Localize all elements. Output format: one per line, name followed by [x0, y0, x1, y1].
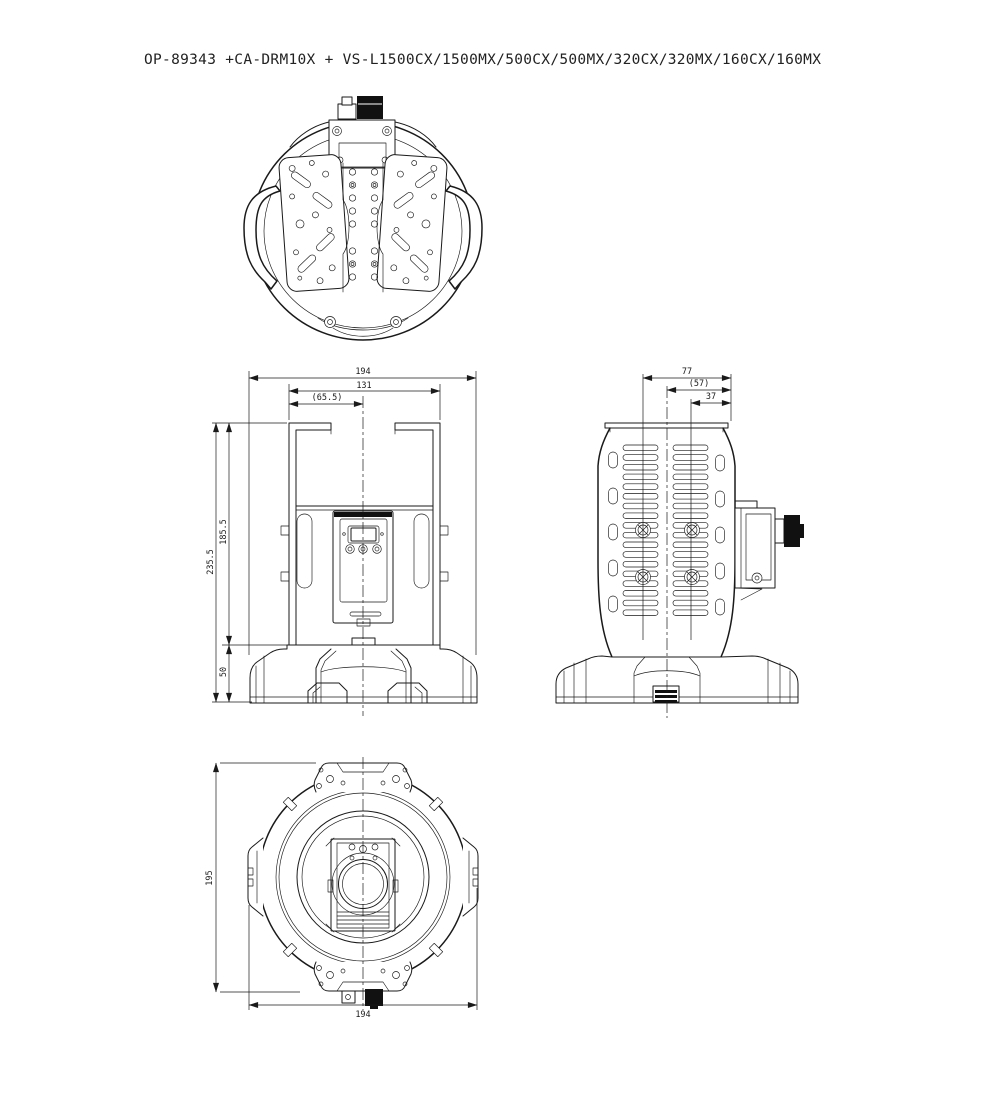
plate-screw [383, 127, 392, 136]
vent-slot [623, 552, 658, 558]
center-hole-grid [349, 169, 377, 280]
body-outline [721, 428, 735, 657]
center-hole [349, 208, 355, 214]
vent-slot [623, 561, 658, 567]
housing-tab [440, 526, 448, 535]
housing-tab [281, 526, 289, 535]
base [250, 645, 477, 703]
power-connector [357, 96, 383, 119]
vent-slot [623, 503, 658, 509]
vent-slot [673, 455, 708, 461]
vent-slot [673, 561, 708, 567]
top-flange [605, 423, 728, 428]
vent-oval [716, 491, 725, 507]
panel-button [346, 545, 355, 554]
vent-slot [623, 542, 658, 548]
vent-slot [673, 503, 708, 509]
vent-oval [609, 524, 618, 540]
vent-oval [716, 599, 725, 615]
mounting-plate-outline [278, 154, 349, 292]
vent-slot [623, 464, 658, 470]
center-hole [371, 208, 377, 214]
vent-slot [623, 474, 658, 480]
mounting-plate [278, 154, 349, 292]
plate-screw [333, 127, 342, 136]
housing-slot [414, 514, 429, 588]
vent-slot [673, 591, 708, 597]
boss-screw [391, 317, 402, 328]
vent-slot [673, 484, 708, 490]
base-connector [653, 686, 679, 702]
plug-connector [784, 515, 800, 547]
vent-slot [623, 600, 658, 606]
housing-tab [440, 572, 448, 581]
dim-side-mount-pitch: 77 [682, 367, 692, 377]
bracket-right [395, 423, 440, 649]
base-connector-stripe [655, 695, 677, 698]
dim-front-body-height: 185.5 [219, 519, 229, 545]
boss-screw [325, 317, 336, 328]
dim-front-base-height: 50 [219, 667, 229, 677]
drawing-canvas: 194 131 (65.5) 235.5 185.5 50 [0, 0, 1000, 1100]
center-hole [371, 169, 377, 175]
cable-connector [338, 104, 356, 119]
connector-box-step [735, 501, 757, 508]
vent-slot [673, 542, 708, 548]
housing-tab [281, 572, 289, 581]
vent-slot [623, 591, 658, 597]
vent-slot [623, 610, 658, 616]
vent-oval [716, 563, 725, 579]
mounting-plate [376, 154, 447, 292]
center-hole [349, 169, 355, 175]
vent-slot [673, 464, 708, 470]
vent-slot [623, 494, 658, 500]
center-hole [349, 182, 355, 188]
panel-button [373, 545, 382, 554]
top-view [244, 96, 482, 340]
vent-slot [673, 513, 708, 519]
base-center-tab [352, 638, 375, 645]
dim-front-bracket-width: 131 [356, 381, 371, 391]
bottom-view: 195 194 [205, 757, 478, 1020]
center-hole [373, 263, 376, 266]
cable-connector-cap [342, 97, 352, 105]
vent-oval [609, 452, 618, 468]
dim-bottom-overall-width: 194 [355, 1010, 370, 1020]
vent-slot [673, 552, 708, 558]
center-hole [371, 261, 377, 267]
vent-slot [673, 445, 708, 451]
dim-front-center-offset: (65.5) [312, 393, 343, 403]
dim-front-overall-height: 235.5 [206, 549, 216, 575]
dim-front-overall-width: 194 [355, 367, 370, 377]
vent-oval [609, 488, 618, 504]
side-wing [446, 186, 482, 289]
center-hole [371, 195, 377, 201]
vent-oval [716, 455, 725, 471]
center-hole [371, 248, 377, 254]
dim-side-center-offset: (57) [689, 379, 709, 389]
center-hole [349, 195, 355, 201]
dim-bottom-overall-depth: 195 [205, 870, 215, 885]
front-view: 194 131 (65.5) 235.5 185.5 50 [206, 367, 477, 716]
vent-slot [673, 600, 708, 606]
side-wing [248, 838, 263, 916]
body-outline [598, 428, 612, 657]
side-wing [244, 186, 280, 289]
plug-base [775, 519, 784, 543]
center-hole [373, 184, 376, 187]
vent-slot [673, 494, 708, 500]
vent-slot [673, 474, 708, 480]
housing-slot [297, 514, 312, 588]
base-connector-stripe [655, 700, 677, 703]
side-view: 77 (57) 37 [556, 367, 804, 718]
center-hole [349, 221, 355, 227]
box-screw [752, 573, 762, 583]
vent-oval [609, 560, 618, 576]
vent-oval [609, 596, 618, 612]
vent-oval [716, 527, 725, 543]
dome-seam [333, 328, 393, 336]
vent-slot [623, 445, 658, 451]
vent-slot [623, 484, 658, 490]
power-connector [365, 989, 383, 1006]
center-hole [349, 261, 355, 267]
plug-nub [800, 524, 804, 538]
center-hole [349, 248, 355, 254]
center-hole [349, 274, 355, 280]
box-gusset [735, 588, 762, 600]
mount-screws [636, 523, 700, 585]
center-hole [351, 184, 354, 187]
bracket-left [289, 423, 331, 649]
vent-slot [623, 513, 658, 519]
cable-connector [342, 991, 355, 1003]
center-hole [371, 182, 377, 188]
vent-slot [623, 455, 658, 461]
side-wing [463, 838, 478, 916]
side-wing [248, 838, 263, 916]
power-connector-nub [370, 1006, 378, 1009]
vent-slot [673, 610, 708, 616]
dim-side-hole-offset: 37 [706, 392, 716, 402]
base-connector-stripe [655, 690, 677, 693]
center-hole [351, 263, 354, 266]
